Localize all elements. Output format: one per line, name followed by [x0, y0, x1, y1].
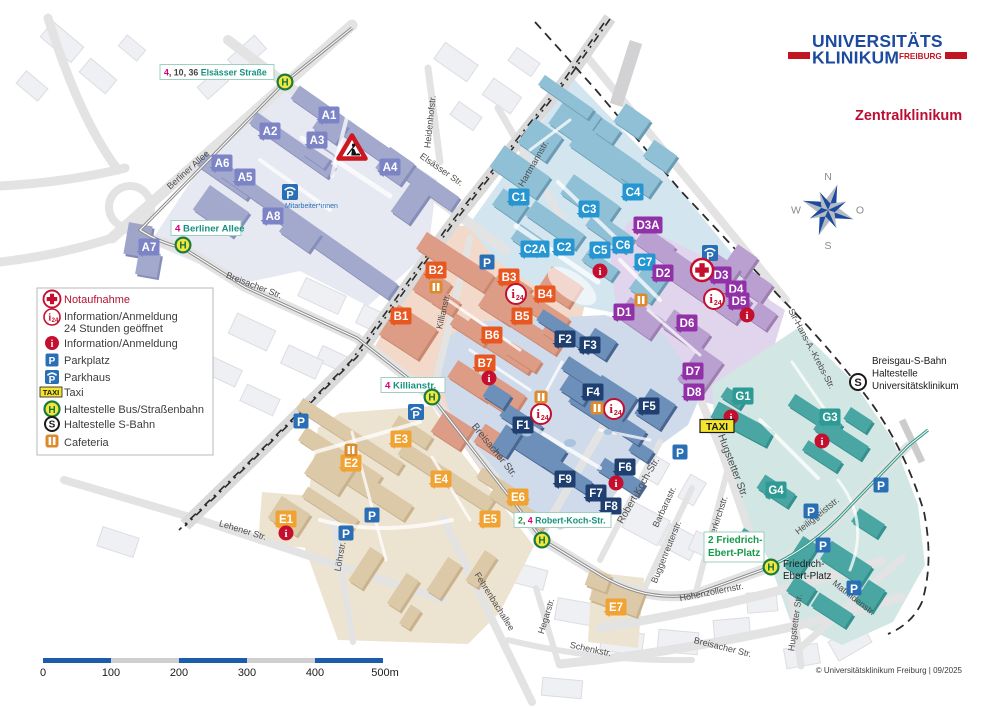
- svg-text:N: N: [824, 171, 832, 183]
- svg-text:P: P: [342, 527, 350, 541]
- svg-text:D7: D7: [686, 366, 701, 378]
- svg-text:100: 100: [102, 667, 120, 679]
- svg-text:G3: G3: [822, 412, 837, 424]
- svg-text:Information/Anmeldung: Information/Anmeldung: [64, 311, 178, 323]
- svg-text:24: 24: [714, 300, 722, 307]
- svg-text:D3A: D3A: [636, 220, 659, 232]
- svg-text:B5: B5: [515, 311, 530, 323]
- svg-text:C6: C6: [616, 240, 631, 252]
- svg-text:H: H: [281, 78, 288, 89]
- svg-text:B6: B6: [485, 330, 500, 342]
- svg-text:F7: F7: [589, 488, 602, 500]
- svg-text:A6: A6: [215, 158, 230, 170]
- svg-text:F8: F8: [604, 501, 618, 513]
- svg-text:A3: A3: [310, 135, 325, 147]
- svg-text:400: 400: [306, 667, 324, 679]
- svg-text:P: P: [297, 415, 305, 429]
- svg-text:Parkplatz: Parkplatz: [64, 355, 110, 367]
- svg-text:S: S: [854, 377, 861, 389]
- svg-text:S: S: [824, 240, 831, 252]
- svg-text:P: P: [286, 190, 293, 202]
- svg-text:F1: F1: [516, 420, 530, 432]
- svg-text:Universitätsklinikum: Universitätsklinikum: [872, 381, 959, 392]
- svg-text:C5: C5: [593, 245, 608, 257]
- svg-text:Ebert-Platz: Ebert-Platz: [708, 548, 760, 559]
- svg-text:F6: F6: [618, 462, 631, 474]
- svg-text:200: 200: [170, 667, 188, 679]
- svg-text:0: 0: [40, 667, 46, 679]
- svg-text:H: H: [767, 563, 774, 574]
- svg-text:Breisgau-S-Bahn: Breisgau-S-Bahn: [872, 356, 947, 367]
- svg-text:C7: C7: [638, 257, 653, 269]
- svg-text:Zentralklinikum: Zentralklinikum: [855, 108, 962, 124]
- svg-text:D5: D5: [732, 296, 747, 308]
- svg-text:D8: D8: [687, 387, 702, 399]
- svg-text:A1: A1: [322, 110, 337, 122]
- svg-text:Haltestelle: Haltestelle: [872, 369, 918, 380]
- svg-text:2 Friedrich-: 2 Friedrich-: [708, 535, 762, 546]
- svg-text:D1: D1: [617, 307, 632, 319]
- svg-text:24: 24: [541, 415, 549, 422]
- svg-text:P: P: [49, 375, 56, 386]
- svg-text:P: P: [49, 356, 56, 367]
- svg-text:4, 10, 36 Elsässer Straße: 4, 10, 36 Elsässer Straße: [164, 68, 267, 78]
- svg-text:C2: C2: [557, 242, 572, 254]
- svg-text:W: W: [791, 205, 801, 217]
- svg-text:i: i: [536, 406, 540, 421]
- svg-text:E1: E1: [279, 514, 294, 526]
- svg-text:24: 24: [614, 410, 622, 417]
- svg-text:D6: D6: [680, 318, 695, 330]
- svg-text:G4: G4: [768, 485, 784, 497]
- svg-text:C4: C4: [626, 187, 641, 199]
- svg-text:i: i: [709, 291, 713, 306]
- svg-text:E2: E2: [344, 458, 358, 470]
- svg-text:TAXI: TAXI: [706, 422, 728, 433]
- svg-text:E3: E3: [394, 434, 408, 446]
- svg-text:P: P: [676, 446, 684, 460]
- svg-text:H: H: [428, 393, 435, 404]
- svg-text:C3: C3: [582, 204, 597, 216]
- svg-text:i: i: [745, 310, 748, 322]
- svg-text:4 Berliner Allee: 4 Berliner Allee: [175, 224, 245, 235]
- svg-text:O: O: [856, 205, 864, 217]
- svg-text:i: i: [511, 286, 515, 301]
- svg-text:FREIBURG: FREIBURG: [899, 52, 942, 61]
- svg-text:Ebert-Platz: Ebert-Platz: [783, 571, 832, 582]
- svg-text:E5: E5: [483, 514, 498, 526]
- svg-text:F3: F3: [583, 340, 596, 352]
- svg-text:A2: A2: [263, 126, 278, 138]
- svg-text:H: H: [538, 536, 545, 547]
- svg-text:H: H: [48, 405, 55, 416]
- svg-text:24 Stunden geöffnet: 24 Stunden geöffnet: [64, 323, 163, 335]
- svg-text:500m: 500m: [371, 667, 399, 679]
- svg-text:C1: C1: [512, 192, 527, 204]
- svg-text:H: H: [179, 241, 186, 252]
- svg-text:24: 24: [516, 295, 524, 302]
- svg-text:A7: A7: [142, 242, 157, 254]
- svg-text:Parkhaus: Parkhaus: [64, 372, 111, 384]
- svg-text:i: i: [51, 339, 54, 350]
- svg-text:i: i: [820, 436, 823, 448]
- svg-text:F9: F9: [558, 474, 571, 486]
- svg-text:P: P: [807, 505, 815, 519]
- svg-text:Taxi: Taxi: [64, 387, 84, 399]
- svg-text:A8: A8: [266, 211, 281, 223]
- svg-text:P: P: [850, 582, 858, 596]
- svg-text:C2A: C2A: [523, 244, 546, 256]
- svg-text:TAXI: TAXI: [43, 388, 60, 397]
- svg-text:i: i: [487, 373, 490, 385]
- svg-text:P: P: [368, 509, 376, 523]
- svg-text:i: i: [609, 401, 613, 416]
- svg-text:i: i: [284, 528, 287, 540]
- svg-text:P: P: [819, 539, 827, 553]
- svg-text:P: P: [412, 410, 419, 422]
- svg-text:F5: F5: [642, 401, 656, 413]
- svg-text:B7: B7: [478, 358, 493, 370]
- svg-text:E7: E7: [609, 602, 623, 614]
- svg-text:A4: A4: [383, 162, 398, 174]
- svg-text:P: P: [877, 479, 885, 493]
- svg-text:Notaufnahme: Notaufnahme: [64, 294, 130, 306]
- svg-text:E6: E6: [511, 492, 525, 504]
- svg-text:A5: A5: [238, 172, 253, 184]
- svg-text:F2: F2: [558, 334, 571, 346]
- svg-text:E4: E4: [434, 474, 449, 486]
- svg-text:KLINIKUM: KLINIKUM: [812, 48, 899, 68]
- svg-text:Friedrich-: Friedrich-: [783, 559, 824, 570]
- svg-text:B4: B4: [538, 289, 553, 301]
- svg-text:24: 24: [52, 318, 59, 324]
- svg-text:i: i: [614, 478, 617, 490]
- svg-text:Haltestelle Bus/Straßenbahn: Haltestelle Bus/Straßenbahn: [64, 404, 204, 416]
- svg-text:2, 4 Robert-Koch-Str.: 2, 4 Robert-Koch-Str.: [518, 516, 606, 526]
- svg-text:D3: D3: [714, 270, 729, 282]
- svg-text:© Universitätsklinikum Freibur: © Universitätsklinikum Freiburg | 09/202…: [816, 666, 963, 675]
- svg-text:B2: B2: [429, 265, 444, 277]
- svg-text:300: 300: [238, 667, 256, 679]
- svg-text:P: P: [483, 256, 491, 270]
- svg-text:S: S: [49, 420, 56, 431]
- svg-text:B3: B3: [502, 272, 517, 284]
- svg-text:D2: D2: [656, 268, 671, 280]
- svg-text:B1: B1: [394, 311, 409, 323]
- svg-text:Cafeteria: Cafeteria: [64, 437, 110, 449]
- svg-text:F4: F4: [586, 387, 600, 399]
- svg-text:Haltestelle S-Bahn: Haltestelle S-Bahn: [64, 419, 155, 431]
- svg-text:G1: G1: [735, 391, 751, 403]
- svg-text:Mitarbeiter*innen: Mitarbeiter*innen: [285, 203, 338, 210]
- svg-text:i: i: [598, 266, 601, 278]
- svg-text:Information/Anmeldung: Information/Anmeldung: [64, 338, 178, 350]
